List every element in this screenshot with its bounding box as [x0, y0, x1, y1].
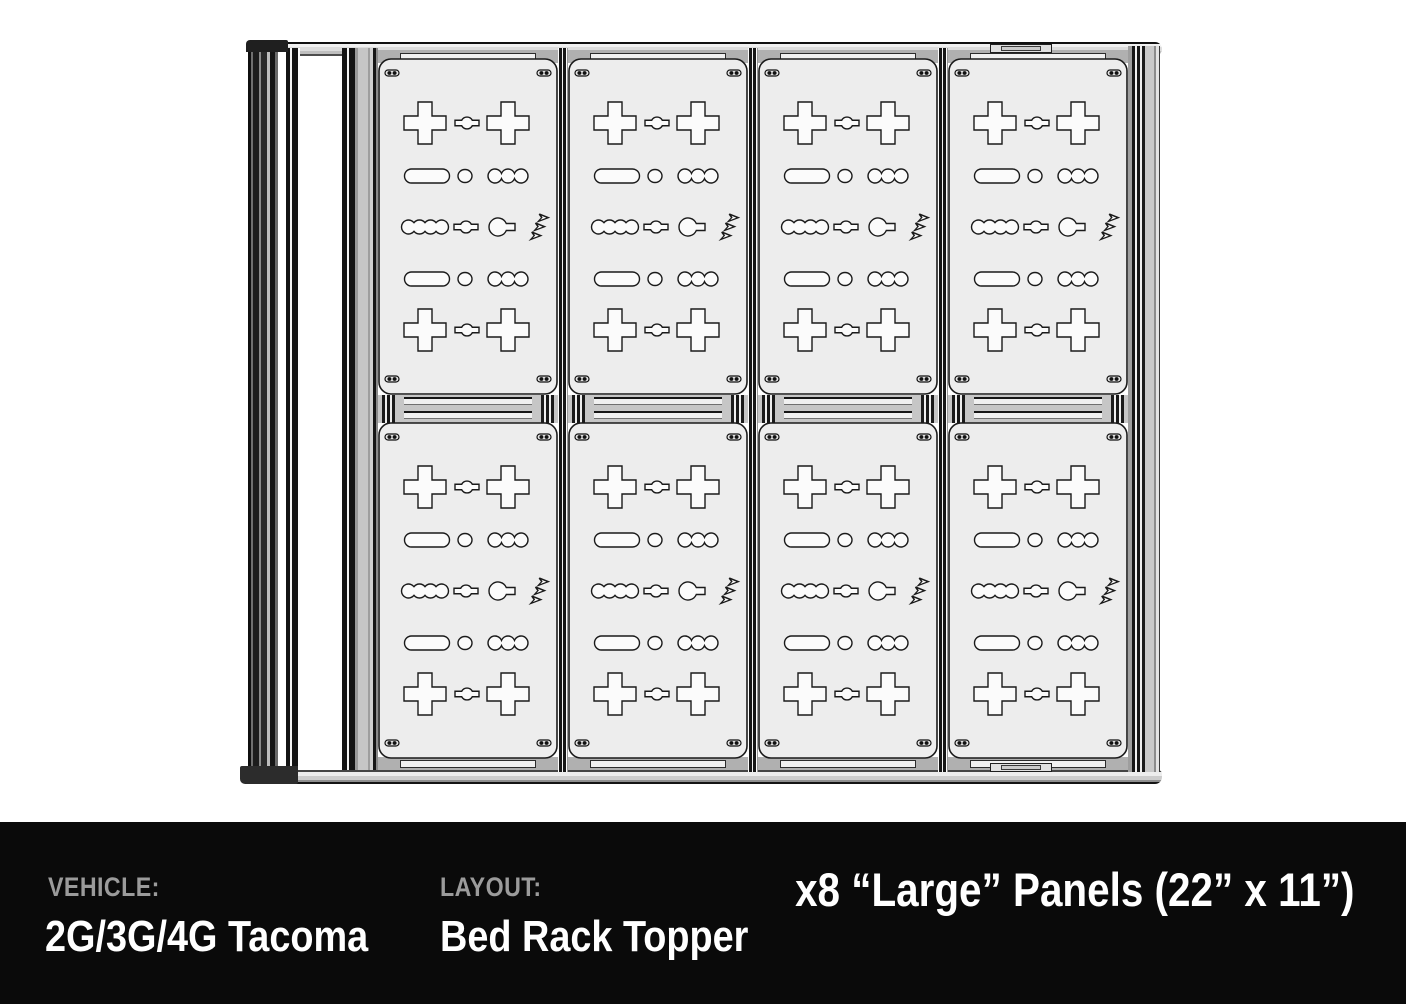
crossbar-end — [572, 395, 592, 423]
fastener-icon — [955, 376, 969, 382]
circle-cutout — [648, 170, 662, 183]
crossbar-end — [914, 395, 934, 423]
fastener-icon — [575, 740, 589, 746]
pill-slot-cutout — [785, 533, 830, 547]
molle-panel — [758, 58, 938, 395]
crossbar-rail — [404, 397, 532, 405]
pill-slot-cutout — [595, 169, 640, 183]
pill-slot-cutout — [975, 169, 1020, 183]
fastener-icon — [955, 740, 969, 746]
scallop-slot-cutout — [1058, 533, 1098, 547]
scallop-slot-cutout — [1058, 272, 1098, 286]
molle-panel — [378, 422, 558, 759]
fastener-icon — [575, 70, 589, 76]
scallop-slot-cutout — [678, 272, 718, 286]
crossbar-rail — [784, 397, 912, 405]
right-rail — [1128, 46, 1160, 772]
screenshot: VEHICLE: 2G/3G/4G Tacoma LAYOUT: Bed Rac… — [0, 0, 1406, 1004]
circle-cutout — [1028, 273, 1042, 286]
fastener-icon — [385, 434, 399, 440]
circle-cutout — [838, 273, 852, 286]
fastener-icon — [537, 376, 551, 382]
crossbar-end — [1104, 395, 1124, 423]
circle-cutout — [648, 273, 662, 286]
circle-cutout — [648, 637, 662, 650]
scallop-slot-cutout — [678, 169, 718, 183]
pill-slot-cutout — [975, 272, 1020, 286]
fastener-icon — [575, 434, 589, 440]
pill-slot-cutout — [785, 636, 830, 650]
fastener-icon — [727, 70, 741, 76]
scallop-slot-cutout — [488, 533, 528, 547]
fastener-icon — [1107, 376, 1121, 382]
fastener-icon — [765, 740, 779, 746]
fastener-icon — [765, 434, 779, 440]
layout-value: Bed Rack Topper — [440, 912, 799, 962]
fastener-icon — [917, 740, 931, 746]
molle-panel — [568, 58, 748, 395]
circle-cutout — [1028, 637, 1042, 650]
vehicle-label: VEHICLE: — [48, 872, 178, 903]
mid-crossbar — [948, 395, 1128, 423]
rail-latch-inner — [1001, 46, 1041, 51]
pill-slot-cutout — [405, 636, 450, 650]
fastener-icon — [765, 376, 779, 382]
crossbar-end — [952, 395, 972, 423]
circle-cutout — [458, 637, 472, 650]
scallop-slot-cutout — [488, 272, 528, 286]
left-rail-top-cap — [246, 40, 288, 52]
info-bar: VEHICLE: 2G/3G/4G Tacoma LAYOUT: Bed Rac… — [0, 822, 1406, 1004]
scallop-slot-cutout — [782, 220, 829, 234]
fastener-icon — [575, 376, 589, 382]
scallop-slot-cutout — [488, 169, 528, 183]
fastener-icon — [727, 434, 741, 440]
fastener-icon — [537, 434, 551, 440]
fastener-icon — [917, 70, 931, 76]
crossbar-rail — [784, 411, 912, 419]
molle-panel — [758, 422, 938, 759]
crossbar-end — [382, 395, 402, 423]
circle-cutout — [1028, 534, 1042, 547]
scallop-slot-cutout — [402, 220, 449, 234]
crossbar-rail — [594, 397, 722, 405]
bottom-recess — [780, 760, 916, 768]
pill-slot-cutout — [595, 636, 640, 650]
left-inner-rail — [342, 48, 378, 770]
scallop-slot-cutout — [592, 584, 639, 598]
bottom-rail — [258, 770, 1162, 784]
molle-panel — [568, 422, 748, 759]
rail-latch — [990, 763, 1052, 772]
vehicle-value: 2G/3G/4G Tacoma — [45, 912, 421, 962]
scallop-slot-cutout — [592, 220, 639, 234]
crossbar-end — [762, 395, 782, 423]
pill-slot-cutout — [785, 169, 830, 183]
circle-cutout — [838, 534, 852, 547]
crossbar-rail — [974, 411, 1102, 419]
fastener-icon — [1107, 70, 1121, 76]
left-rail-bottom-cap — [240, 766, 298, 784]
crossbar-rail — [404, 411, 532, 419]
panel-count-note: x8 “Large” Panels (22” x 11”) — [704, 862, 1355, 917]
left-rail-bars — [278, 48, 300, 770]
scallop-slot-cutout — [678, 636, 718, 650]
pill-slot-cutout — [595, 272, 640, 286]
fastener-icon — [385, 70, 399, 76]
fastener-icon — [765, 70, 779, 76]
fastener-icon — [917, 434, 931, 440]
pill-slot-cutout — [405, 272, 450, 286]
rack-diagram — [0, 0, 1406, 822]
circle-cutout — [458, 170, 472, 183]
column-separator — [938, 48, 948, 772]
molle-panel — [378, 58, 558, 395]
scallop-slot-cutout — [868, 272, 908, 286]
scallop-slot-cutout — [972, 584, 1019, 598]
scallop-slot-cutout — [868, 533, 908, 547]
bottom-recess — [400, 760, 536, 768]
pill-slot-cutout — [405, 533, 450, 547]
crossbar-end — [534, 395, 554, 423]
pill-slot-cutout — [975, 636, 1020, 650]
mid-crossbar — [758, 395, 938, 423]
mid-crossbar — [378, 395, 558, 423]
circle-cutout — [838, 637, 852, 650]
left-outer-rail — [248, 44, 278, 778]
fastener-icon — [917, 376, 931, 382]
bottom-recess — [590, 760, 726, 768]
fastener-icon — [385, 376, 399, 382]
scallop-slot-cutout — [972, 220, 1019, 234]
crossbar-rail — [594, 411, 722, 419]
crossbar-rail — [974, 397, 1102, 405]
fastener-icon — [537, 740, 551, 746]
fastener-icon — [537, 70, 551, 76]
fastener-icon — [727, 376, 741, 382]
scallop-slot-cutout — [868, 169, 908, 183]
scallop-slot-cutout — [1058, 169, 1098, 183]
pill-slot-cutout — [975, 533, 1020, 547]
scallop-slot-cutout — [402, 584, 449, 598]
pill-slot-cutout — [405, 169, 450, 183]
scallop-slot-cutout — [488, 636, 528, 650]
fastener-icon — [727, 740, 741, 746]
column-separator — [558, 48, 568, 772]
column-separator — [748, 48, 758, 772]
rail-latch-inner — [1001, 765, 1041, 770]
layout-label: LAYOUT: — [440, 872, 558, 903]
rail-latch — [990, 44, 1052, 53]
scallop-slot-cutout — [678, 533, 718, 547]
molle-panel — [948, 58, 1128, 395]
fastener-icon — [1107, 434, 1121, 440]
circle-cutout — [1028, 170, 1042, 183]
pill-slot-cutout — [595, 533, 640, 547]
scallop-slot-cutout — [1058, 636, 1098, 650]
mid-crossbar — [568, 395, 748, 423]
molle-panel — [948, 422, 1128, 759]
circle-cutout — [648, 534, 662, 547]
fastener-icon — [385, 740, 399, 746]
fastener-icon — [955, 434, 969, 440]
fastener-icon — [1107, 740, 1121, 746]
circle-cutout — [458, 273, 472, 286]
scallop-slot-cutout — [782, 584, 829, 598]
crossbar-end — [724, 395, 744, 423]
scallop-slot-cutout — [868, 636, 908, 650]
circle-cutout — [838, 170, 852, 183]
circle-cutout — [458, 534, 472, 547]
fastener-icon — [955, 70, 969, 76]
pill-slot-cutout — [785, 272, 830, 286]
